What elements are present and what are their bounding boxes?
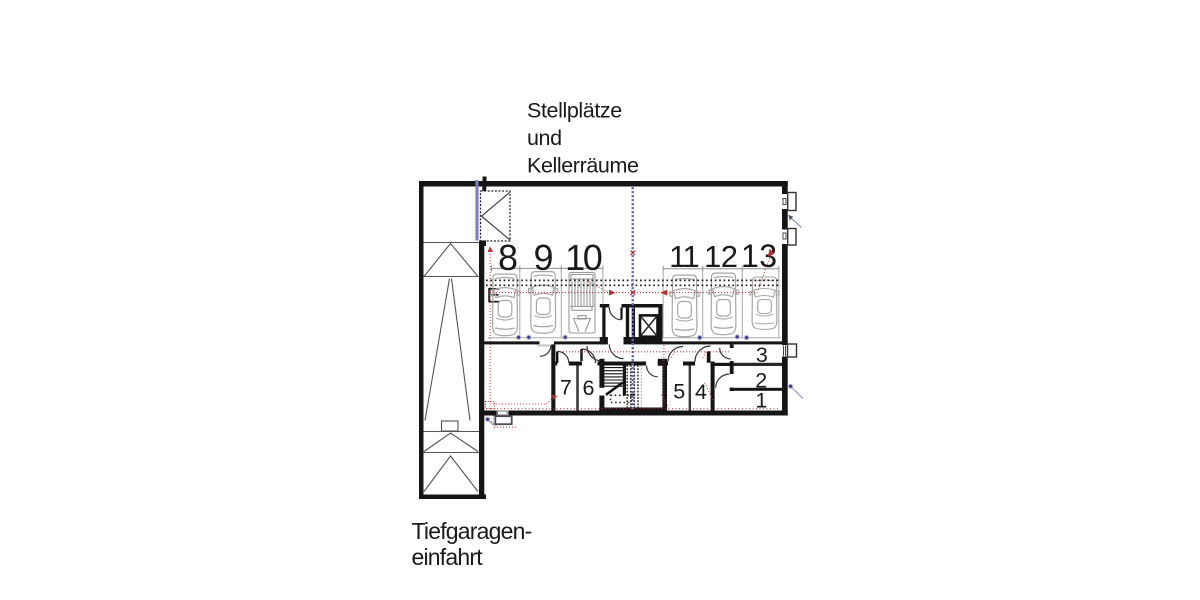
svg-text:3: 3 xyxy=(756,343,768,367)
svg-text:Kellerräume: Kellerräume xyxy=(527,153,639,177)
svg-text:7: 7 xyxy=(560,375,572,399)
svg-text:5: 5 xyxy=(673,379,685,403)
svg-text:Stellplätze: Stellplätze xyxy=(527,99,622,123)
svg-text:4: 4 xyxy=(695,380,707,404)
svg-text:9: 9 xyxy=(533,237,553,278)
svg-text:6: 6 xyxy=(583,376,595,400)
svg-text:und: und xyxy=(527,126,562,150)
svg-text:8: 8 xyxy=(498,237,518,278)
svg-text:10: 10 xyxy=(565,237,602,278)
svg-text:12: 12 xyxy=(704,239,737,274)
svg-text:einfahrt: einfahrt xyxy=(412,544,484,570)
svg-text:11: 11 xyxy=(669,239,698,274)
svg-text:13: 13 xyxy=(741,238,778,274)
svg-text:1: 1 xyxy=(755,389,767,413)
svg-text:Tiefgaragen-: Tiefgaragen- xyxy=(412,518,532,544)
